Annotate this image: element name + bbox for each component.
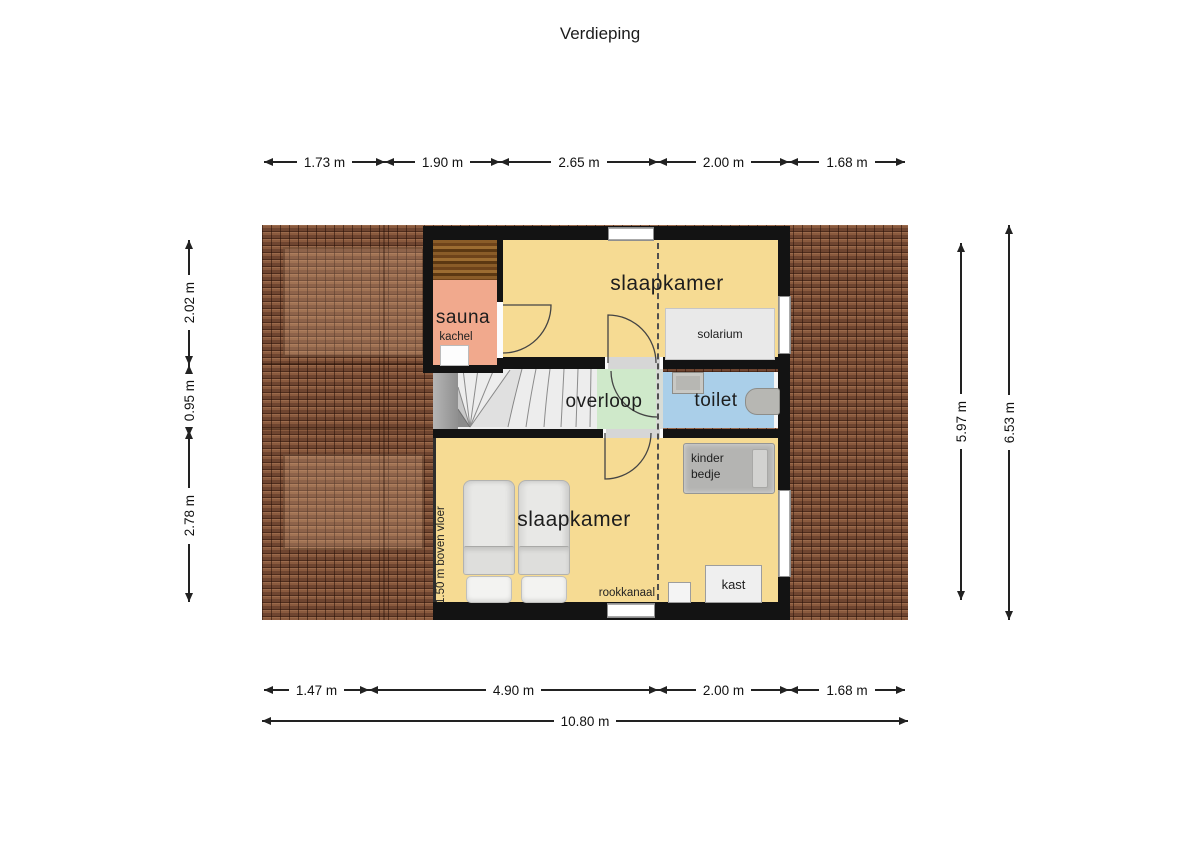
label-slaapkamer-top: slaapkamer — [610, 272, 724, 296]
kinder-bedje-pillow — [752, 449, 768, 488]
dimension-left-1: 2.02 m — [180, 240, 198, 365]
dimension-total-width: 10.80 m — [262, 713, 908, 729]
dimension-line — [751, 161, 789, 163]
dimension-line — [607, 161, 658, 163]
dimension-line — [658, 689, 696, 691]
kast-label: kast — [722, 577, 746, 592]
roof-skylight-top — [283, 247, 424, 357]
dimension-label: 10.80 m — [561, 714, 610, 729]
door-opening-sauna — [497, 302, 503, 358]
window-bottom — [607, 603, 655, 618]
dimension-left-3: 2.78 m — [180, 430, 198, 602]
dimension-top-1: 1.73 m — [264, 154, 385, 170]
dimension-right-inner: 5.97 m — [952, 243, 970, 600]
wall-left-upper — [423, 226, 433, 372]
solarium-label: solarium — [697, 327, 742, 341]
dimension-bottom-1: 1.47 m — [264, 682, 369, 698]
dimension-line — [470, 161, 500, 163]
dimension-line — [188, 240, 190, 275]
roof-edge-line — [262, 363, 433, 365]
label-toilet: toilet — [694, 390, 737, 412]
label-height-note: 1.50 m boven vloer — [435, 462, 447, 604]
dimension-bottom-4: 1.68 m — [789, 682, 905, 698]
dimension-label: 1.73 m — [304, 155, 345, 170]
window-top — [608, 227, 654, 241]
dimension-top-4: 2.00 m — [658, 154, 789, 170]
dimension-line — [960, 449, 962, 600]
dimension-top-5: 1.68 m — [789, 154, 905, 170]
wood-floor-strip — [433, 240, 497, 282]
chimney-block — [433, 369, 458, 429]
door-sill-slaapkamer-top — [605, 357, 663, 369]
dimension-line — [658, 161, 696, 163]
dimension-top-3: 2.65 m — [500, 154, 658, 170]
dimension-label: 2.00 m — [703, 683, 744, 698]
dimension-line — [960, 243, 962, 394]
kinder-bedje: kinder bedje — [683, 443, 775, 494]
label-slaapkamer-bottom: slaapkamer — [517, 508, 631, 532]
dimension-label: 1.47 m — [296, 683, 337, 698]
dimension-bottom-2: 4.90 m — [369, 682, 658, 698]
door-sill-slaapkamer-bottom — [603, 429, 663, 438]
dimension-line — [751, 689, 789, 691]
dimension-line — [385, 161, 415, 163]
dimension-label: 1.68 m — [826, 155, 867, 170]
dimension-line — [500, 161, 551, 163]
roof-edge-line — [262, 428, 433, 430]
dimension-line — [616, 720, 908, 722]
roof-skylight-bottom — [283, 454, 424, 550]
dimension-label: 6.53 m — [1002, 402, 1017, 443]
dimension-line — [1008, 225, 1010, 395]
dimension-label: 2.00 m — [703, 155, 744, 170]
rookkanaal-chimney — [668, 582, 691, 603]
toilet-bowl — [745, 388, 780, 415]
dimension-line — [344, 689, 369, 691]
dimension-label: 2.02 m — [182, 282, 197, 323]
dimension-label: 0.95 m — [182, 380, 197, 421]
dimension-line — [188, 330, 190, 365]
label-rookkanaal: rookkanaal — [560, 587, 655, 599]
bed-left-pillow — [466, 576, 512, 603]
roof-ridge-line — [383, 225, 385, 620]
wall-top — [423, 226, 790, 240]
label-sauna: sauna — [436, 307, 490, 329]
dimension-line — [789, 161, 819, 163]
dimension-line — [369, 689, 486, 691]
solarium: solarium — [665, 308, 775, 360]
dimension-line — [789, 689, 819, 691]
page-title: Verdieping — [0, 24, 1200, 44]
dimension-label: 4.90 m — [493, 683, 534, 698]
kachel-stove — [440, 345, 469, 366]
dimension-line — [352, 161, 385, 163]
dimension-label: 2.65 m — [558, 155, 599, 170]
dimension-bottom-3: 2.00 m — [658, 682, 789, 698]
dimension-label: 2.78 m — [182, 495, 197, 536]
window-right-upper — [778, 296, 791, 354]
kinder-bedje-label: kinder bedje — [691, 451, 741, 482]
bed-fold — [464, 546, 514, 574]
kast-cabinet: kast — [705, 565, 762, 603]
dimension-line — [262, 720, 554, 722]
dashed-roofline — [657, 243, 659, 600]
dimension-line — [875, 161, 905, 163]
wall-sauna-bottom — [423, 365, 503, 373]
dimension-right-outer: 6.53 m — [1000, 225, 1018, 620]
dimension-left-2: 0.95 m — [180, 365, 198, 430]
dimension-line — [875, 689, 905, 691]
bed-fold — [519, 546, 569, 574]
bed-left — [463, 480, 515, 575]
dimension-label: 1.68 m — [826, 683, 867, 698]
window-right-lower — [778, 490, 791, 577]
dimension-line — [264, 161, 297, 163]
label-overloop: overloop — [566, 391, 643, 413]
floorplan-page: Verdieping — [0, 0, 1200, 849]
dimension-top-2: 1.90 m — [385, 154, 500, 170]
dimension-line — [541, 689, 658, 691]
dimension-label: 1.90 m — [422, 155, 463, 170]
dimension-line — [1008, 450, 1010, 620]
dimension-line — [188, 544, 190, 602]
dimension-line — [264, 689, 289, 691]
label-kachel: kachel — [439, 331, 472, 343]
dimension-label: 5.97 m — [954, 401, 969, 442]
dimension-line — [188, 430, 190, 488]
dimension-line — [188, 365, 190, 373]
